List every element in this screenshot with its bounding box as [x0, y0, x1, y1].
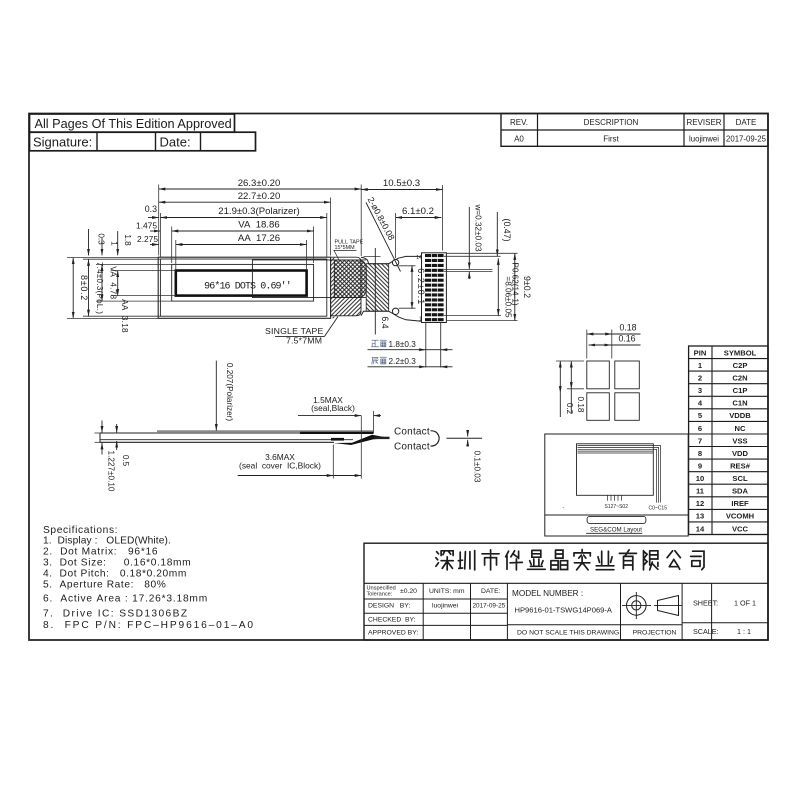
- svg-text:0.3: 0.3: [145, 204, 157, 214]
- svg-text:0.1±0.03: 0.1±0.03: [473, 451, 482, 483]
- svg-text:5: 5: [698, 411, 703, 420]
- svg-text:w=0.32±0.03: w=0.32±0.03: [473, 203, 482, 252]
- svg-text:4: 4: [698, 399, 703, 408]
- svg-text:96*16 DOTS 0.69'': 96*16 DOTS 0.69'': [204, 280, 291, 292]
- svg-text:luojinwei: luojinwei: [689, 135, 719, 144]
- svg-text:=8.06±0.05: =8.06±0.05: [503, 276, 512, 318]
- svg-text:1. Display : OLED(White).: 1. Display : OLED(White).: [43, 536, 171, 547]
- svg-text:9±0.2: 9±0.2: [522, 276, 532, 298]
- svg-text:Tolerance:: Tolerance:: [367, 592, 393, 598]
- svg-text:6: 6: [698, 424, 702, 433]
- svg-text:VSS: VSS: [732, 436, 747, 445]
- svg-text:SEG&COM Layout: SEG&COM Layout: [590, 527, 642, 534]
- svg-text:RES#: RES#: [730, 462, 751, 471]
- svg-text:Date:: Date:: [160, 135, 191, 150]
- svg-text:PIN: PIN: [694, 348, 707, 357]
- svg-text:(0.47): (0.47): [502, 219, 512, 242]
- svg-text:13: 13: [696, 512, 704, 521]
- svg-text:7. Drive IC: SSD1306BZ: 7. Drive IC: SSD1306BZ: [43, 609, 188, 620]
- svg-text:C2N: C2N: [732, 374, 747, 383]
- svg-text:VCOMH: VCOMH: [726, 512, 754, 521]
- svg-text:DO NOT SCALE THIS DRAWING.: DO NOT SCALE THIS DRAWING.: [517, 630, 621, 637]
- svg-text:2. Dot Matrix: 96*16: 2. Dot Matrix: 96*16: [43, 547, 158, 558]
- svg-text:SDA: SDA: [732, 487, 749, 496]
- svg-text:SYMBOL: SYMBOL: [724, 348, 757, 357]
- svg-text:11: 11: [696, 487, 705, 496]
- svg-text:1.8±0.3: 1.8±0.3: [389, 340, 417, 349]
- svg-text:9: 9: [698, 462, 702, 471]
- svg-text:S127~S02: S127~S02: [605, 504, 629, 510]
- svg-text:A0: A0: [514, 135, 524, 144]
- svg-text:PROJECTION: PROJECTION: [633, 630, 677, 637]
- svg-text:14: 14: [696, 524, 705, 533]
- svg-text:(seal cover IC,Block): (seal cover IC,Block): [239, 461, 321, 471]
- svg-text:Signature:: Signature:: [33, 135, 92, 150]
- svg-text:2017-09-25: 2017-09-25: [473, 603, 506, 610]
- svg-text:0.18: 0.18: [619, 323, 636, 333]
- svg-text:6.4: 6.4: [380, 316, 390, 328]
- svg-text:DATE: DATE: [736, 118, 757, 127]
- svg-text:SCL: SCL: [732, 474, 748, 483]
- svg-text:SHEET:: SHEET:: [693, 599, 718, 608]
- svg-text:8±0.2: 8±0.2: [79, 275, 89, 301]
- svg-text:1: 1: [110, 241, 119, 246]
- svg-text:5. Aperture Rate: 80%: 5. Aperture Rate: 80%: [43, 580, 166, 591]
- svg-text:3. Dot Size: 0.16*0.18mm: 3. Dot Size: 0.16*0.18mm: [43, 558, 191, 569]
- svg-text:SCALE:: SCALE:: [693, 627, 719, 636]
- svg-text:C0~C15: C0~C15: [649, 505, 668, 511]
- svg-text:7.5*7MM: 7.5*7MM: [286, 336, 322, 346]
- svg-text:All Pages Of This Edition Appr: All Pages Of This Edition Approved: [35, 117, 232, 131]
- svg-text:0.2: 0.2: [565, 403, 574, 415]
- svg-text:0.18: 0.18: [576, 397, 585, 413]
- svg-text:DESIGN BY:: DESIGN BY:: [368, 603, 410, 610]
- svg-text:C1P: C1P: [733, 386, 748, 395]
- svg-text:AA 17.26: AA 17.26: [238, 233, 280, 244]
- svg-text:VCC: VCC: [732, 524, 749, 533]
- svg-text:1: 1: [419, 316, 422, 322]
- svg-text:VDD: VDD: [732, 449, 749, 458]
- svg-text:10: 10: [696, 474, 704, 483]
- svg-text:3: 3: [698, 386, 702, 395]
- svg-text:Contact: Contact: [394, 427, 430, 438]
- svg-text:26.3±0.20: 26.3±0.20: [238, 178, 281, 189]
- svg-text:2.275: 2.275: [137, 234, 158, 244]
- svg-text:VA 4.78: VA 4.78: [108, 266, 117, 299]
- svg-text:7.4±0.3(PoL.): 7.4±0.3(PoL.): [95, 262, 104, 314]
- svg-text:CHECKED BY:: CHECKED BY:: [368, 617, 416, 624]
- svg-text:HP9616-01-TSWG14P069-A: HP9616-01-TSWG14P069-A: [515, 606, 613, 615]
- svg-text:2: 2: [698, 374, 702, 383]
- svg-text:2-ø0.8±0.08: 2-ø0.8±0.08: [366, 195, 397, 242]
- svg-text:10.5±0.3: 10.5±0.3: [383, 178, 420, 189]
- svg-text:DESCRIPTION: DESCRIPTION: [584, 118, 639, 127]
- svg-text:8: 8: [698, 449, 702, 458]
- svg-text:0.16: 0.16: [618, 334, 635, 344]
- svg-text:6.1±0.2: 6.1±0.2: [402, 206, 434, 217]
- svg-text:1.227±0.10: 1.227±0.10: [106, 451, 115, 492]
- svg-text:4. Dot Pitch: 0.18*0.20mm: 4. Dot Pitch: 0.18*0.20mm: [43, 569, 187, 580]
- svg-text:22.7±0.20: 22.7±0.20: [238, 191, 281, 202]
- svg-text:MODEL NUMBER :: MODEL NUMBER :: [512, 589, 583, 598]
- svg-text:14: 14: [416, 255, 422, 261]
- svg-text:REVISER: REVISER: [686, 118, 721, 127]
- svg-text:1.475: 1.475: [136, 220, 157, 230]
- svg-text:Specifications:: Specifications:: [43, 525, 118, 536]
- svg-text:SINGLE TAPE: SINGLE TAPE: [265, 326, 324, 336]
- svg-text:UNITS: mm: UNITS: mm: [429, 588, 465, 595]
- svg-text:2.2±0.3: 2.2±0.3: [389, 357, 417, 366]
- svg-text:1 : 1: 1 : 1: [737, 627, 751, 636]
- svg-text:0.207(Polarizer): 0.207(Polarizer): [225, 363, 234, 422]
- svg-text:C2P: C2P: [733, 361, 748, 370]
- svg-text:REV.: REV.: [510, 118, 528, 127]
- svg-text:luojinwei: luojinwei: [432, 603, 459, 610]
- svg-text:±0.20: ±0.20: [400, 588, 417, 595]
- svg-text:IREF: IREF: [731, 499, 749, 508]
- svg-text:DATE:: DATE:: [481, 588, 501, 595]
- svg-text:8. FPC P/N: FPC–HP9616–01–A0: 8. FPC P/N: FPC–HP9616–01–A0: [43, 620, 255, 631]
- svg-text:0.5: 0.5: [121, 455, 130, 467]
- svg-text:1.8: 1.8: [123, 234, 132, 246]
- svg-text:NC: NC: [735, 424, 746, 433]
- svg-text:(seal,Black): (seal,Black): [311, 403, 355, 413]
- svg-text:C1N: C1N: [732, 399, 747, 408]
- svg-text:6.2±0.1: 6.2±0.1: [416, 268, 426, 305]
- svg-text:1 OF 1: 1 OF 1: [734, 599, 756, 608]
- svg-text:1: 1: [698, 361, 703, 370]
- svg-text:VDDB: VDDB: [729, 411, 751, 420]
- svg-text:Contact: Contact: [394, 442, 430, 453]
- svg-text:-: -: [563, 505, 565, 511]
- svg-text:First: First: [603, 135, 619, 144]
- svg-text:APPROVED BY:: APPROVED BY:: [368, 630, 418, 637]
- svg-text:6. Active Area : 17.26*3.18mm: 6. Active Area : 17.26*3.18mm: [43, 594, 208, 605]
- svg-text:7: 7: [698, 436, 702, 445]
- svg-text:21.9±0.3(Polarizer): 21.9±0.3(Polarizer): [218, 206, 300, 217]
- svg-text:2017-09-25: 2017-09-25: [726, 135, 767, 144]
- svg-text:12: 12: [696, 499, 704, 508]
- svg-text:VA 18.86: VA 18.86: [238, 219, 279, 230]
- svg-text:0.3: 0.3: [97, 233, 106, 245]
